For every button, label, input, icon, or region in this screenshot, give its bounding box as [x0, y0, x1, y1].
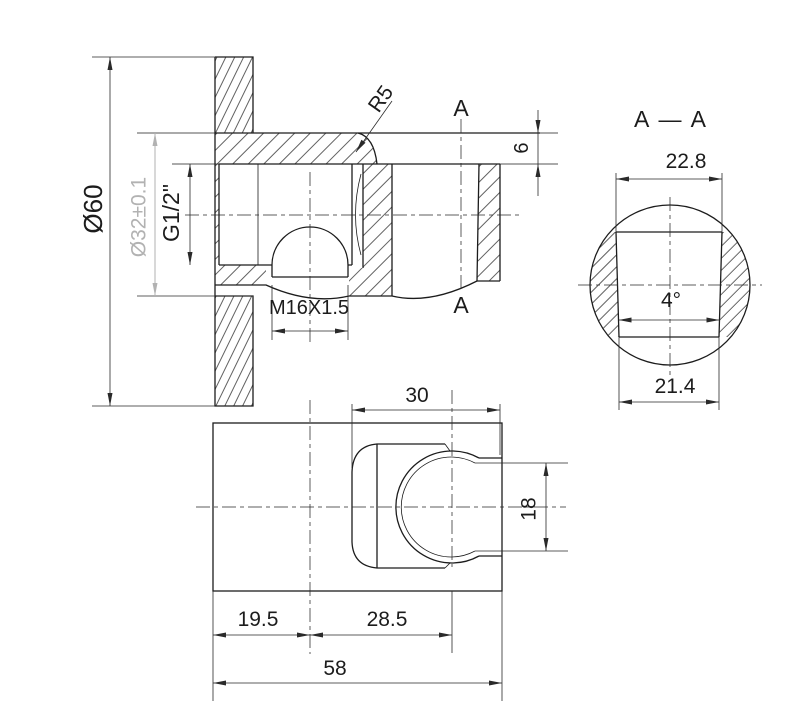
dim-thread-label: G1/2"	[158, 184, 184, 242]
dim-plate-thickness-label: 6	[511, 142, 533, 153]
dim-cup-center-offset: 28.5	[310, 591, 452, 653]
dim-top-width: 22.8	[616, 150, 722, 232]
section-aa-title: A — A	[634, 106, 708, 132]
technical-drawing-canvas: Ø60 Ø32±0.1 G1/2" 6 M16X1.5	[0, 0, 800, 723]
dim-fillet-radius: R5	[356, 81, 398, 152]
dim-escutcheon-bore-label: Ø32±0.1	[128, 177, 151, 257]
dim-fillet-radius-label: R5	[364, 81, 398, 116]
dim-left-offset: 19.5	[213, 591, 310, 701]
section-label-bottom: A	[453, 292, 469, 318]
dim-thread: G1/2"	[158, 164, 193, 265]
dim-bottom-width-label: 21.4	[655, 375, 696, 398]
dim-bottom-width: 21.4	[619, 337, 719, 410]
dim-opening-height-label: 18	[518, 497, 541, 520]
dim-bottom-thread-label: M16X1.5	[269, 297, 349, 319]
front-section-view: Ø60 Ø32±0.1 G1/2" 6 M16X1.5	[78, 57, 558, 406]
drawing-page: Ø60 Ø32±0.1 G1/2" 6 M16X1.5	[0, 0, 800, 723]
escutcheon-hatch	[215, 57, 253, 406]
plan-view: 30 18 19.5 28.5 58	[196, 384, 568, 701]
dim-top-width-label: 22.8	[666, 150, 707, 173]
dim-cup-width-label: 30	[405, 384, 428, 407]
dim-left-offset-label: 19.5	[238, 608, 279, 631]
dim-bottom-thread: M16X1.5	[269, 285, 349, 340]
dim-cup-width: 30	[352, 384, 500, 468]
section-aa-view: A — A 22.8 4°	[578, 106, 762, 410]
dim-total-length-label: 58	[323, 657, 346, 680]
dim-taper-angle: 4°	[619, 289, 720, 323]
dim-plate-thickness: 6	[511, 110, 541, 196]
section-label-top: A	[453, 95, 469, 121]
dim-outer-diameter-label: Ø60	[78, 184, 108, 233]
dim-cup-center-offset-label: 28.5	[367, 608, 408, 631]
dim-taper-angle-label: 4°	[661, 289, 681, 312]
